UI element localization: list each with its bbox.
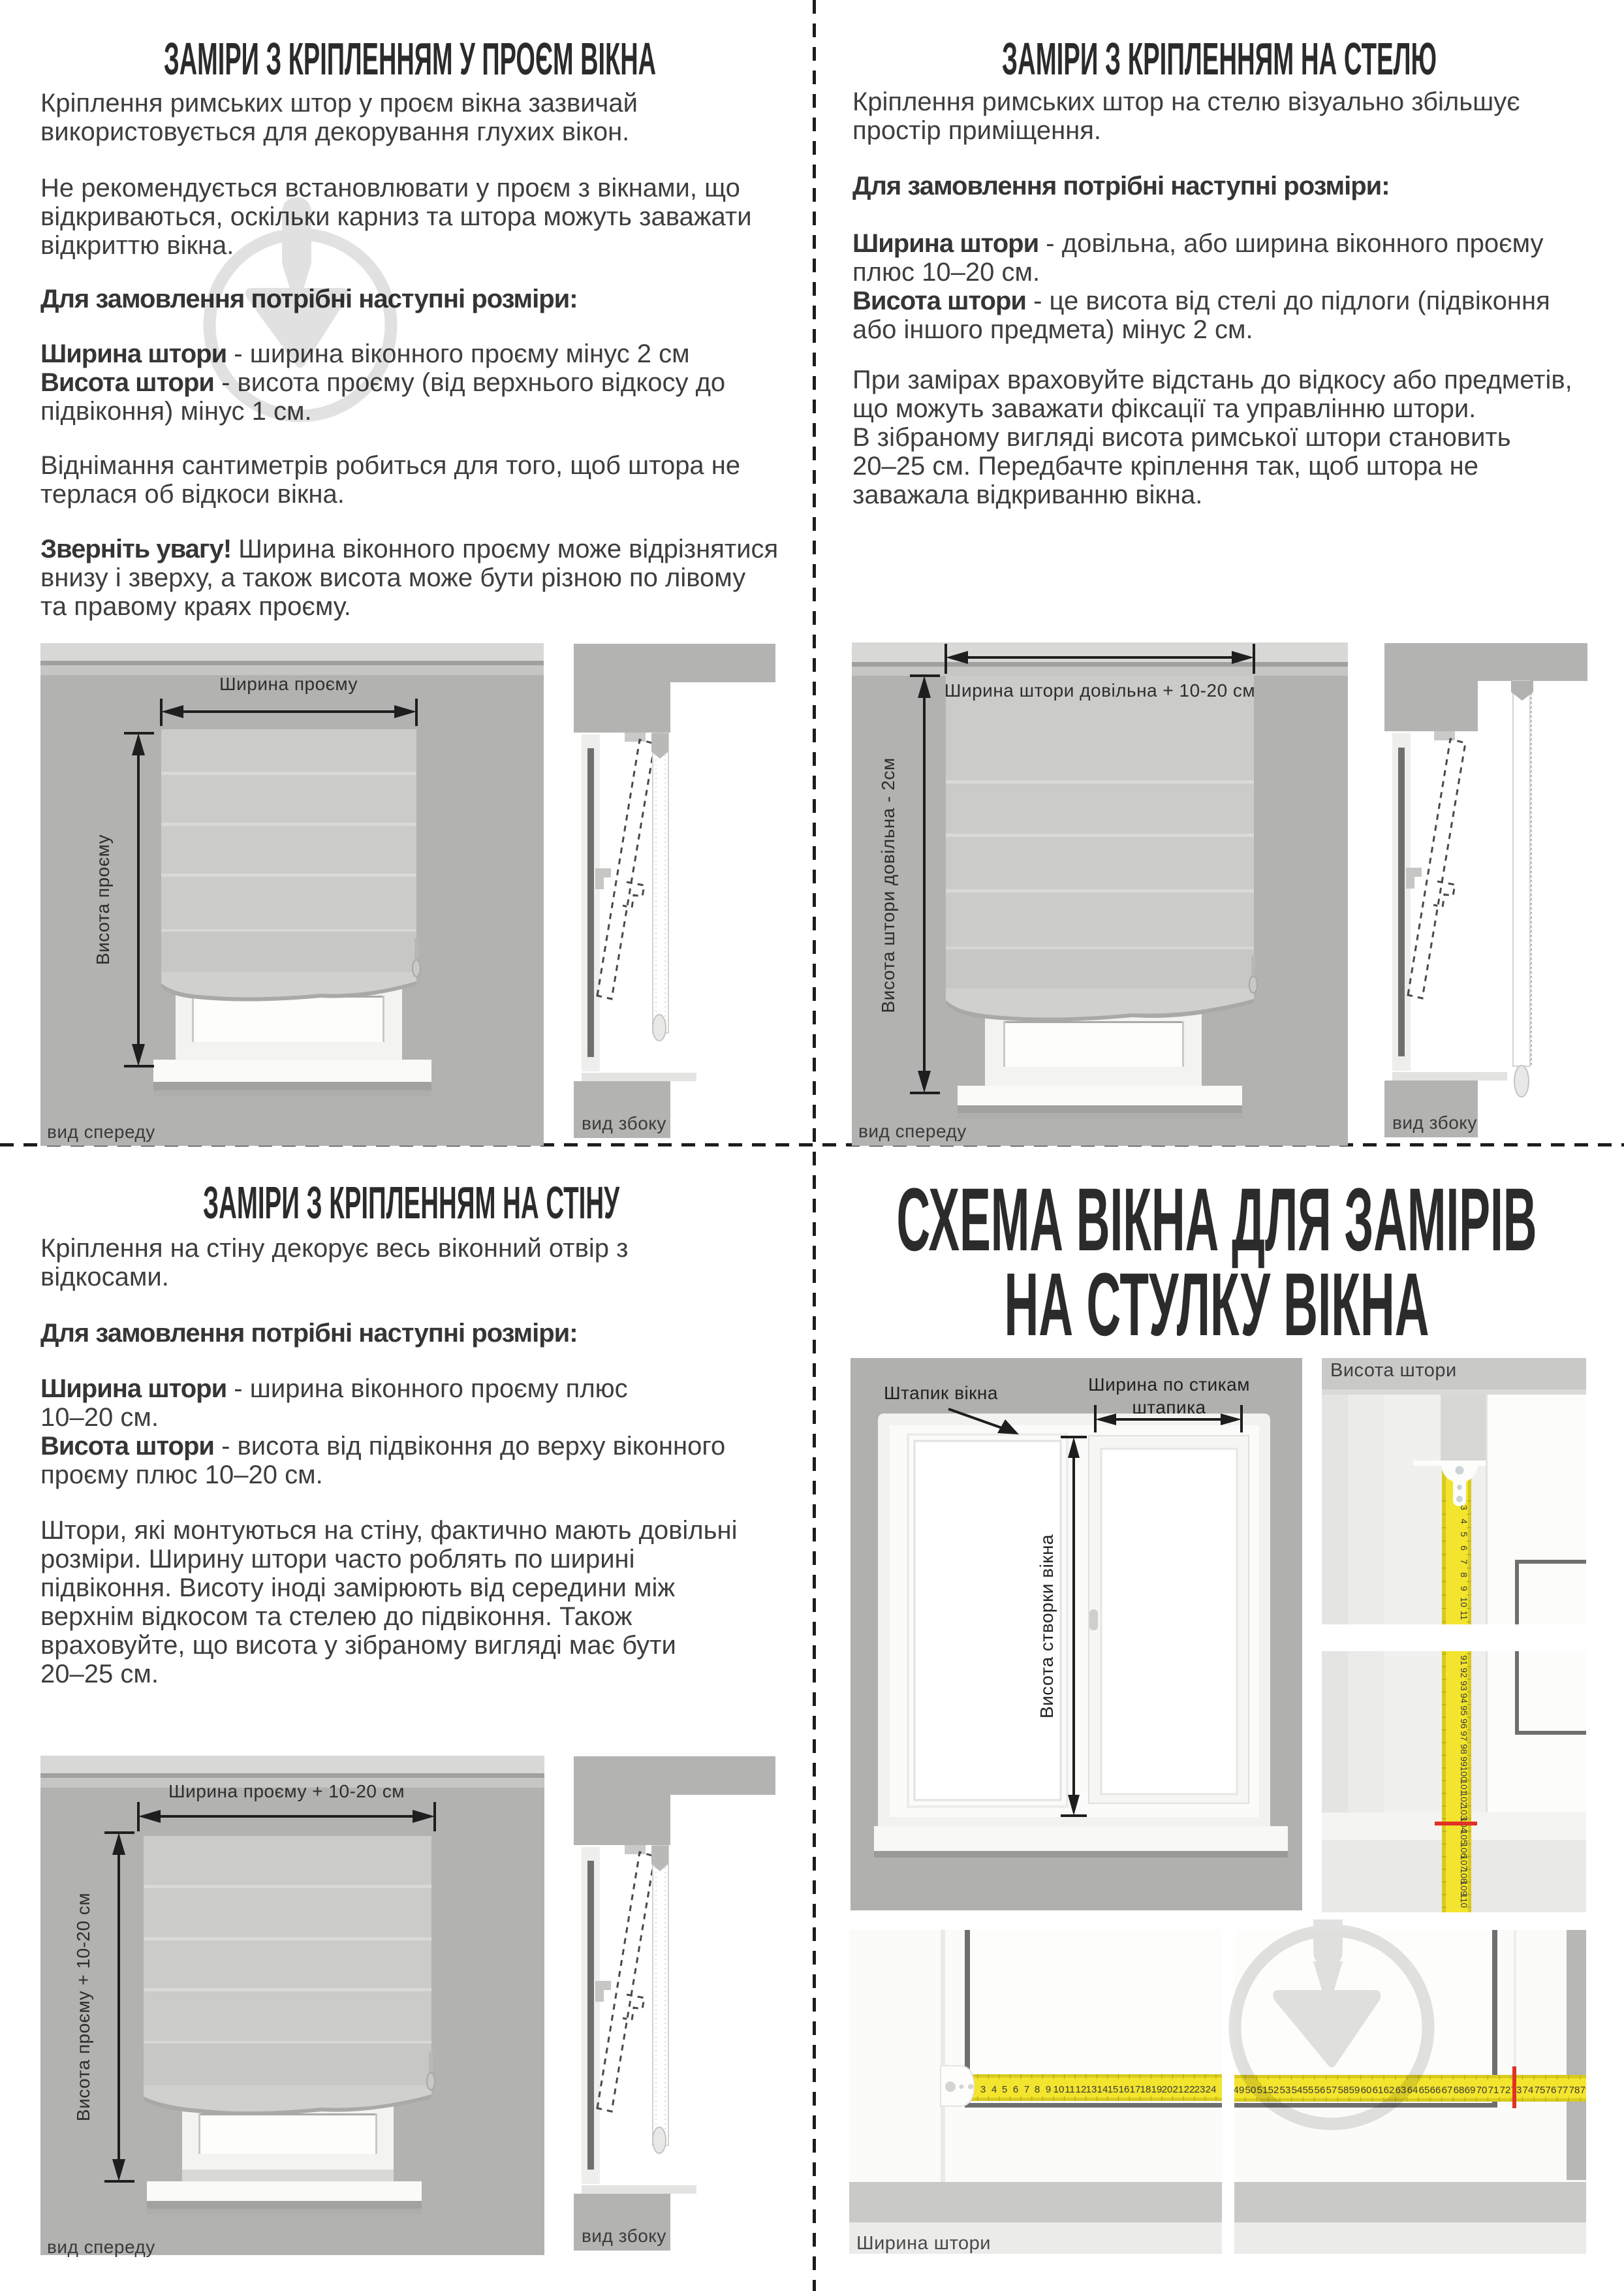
svg-text:9: 9 — [1046, 2084, 1051, 2095]
svg-text:Штапик вікна: Штапик вікна — [884, 1383, 998, 1403]
svg-text:Висота проєму + 10-20 см: Висота проєму + 10-20 см — [73, 1893, 93, 2121]
svg-text:10: 10 — [1054, 2084, 1065, 2095]
svg-text:110: 110 — [1459, 1893, 1469, 1908]
svg-text:Висота штори довільна - 2см: Висота штори довільна - 2см — [878, 757, 898, 1013]
svg-text:ЗАМІРИ З КРІПЛЕННЯМ НА СТЕЛЮ: ЗАМІРИ З КРІПЛЕННЯМ НА СТЕЛЮ — [1002, 33, 1437, 84]
svg-text:69: 69 — [1465, 2085, 1476, 2096]
svg-text:14: 14 — [1097, 2084, 1108, 2095]
svg-text:75: 75 — [1535, 2085, 1546, 2096]
svg-text:вид спереду: вид спереду — [47, 2237, 155, 2257]
svg-text:78: 78 — [1569, 2085, 1580, 2096]
svg-text:16: 16 — [1119, 2084, 1130, 2095]
svg-text:НА СТУЛКУ ВІКНА: НА СТУЛКУ ВІКНА — [1005, 1255, 1429, 1351]
svg-text:8: 8 — [1459, 1572, 1469, 1577]
svg-text:91: 91 — [1459, 1655, 1469, 1666]
svg-text:11: 11 — [1459, 1611, 1469, 1620]
svg-text:вид спереду: вид спереду — [858, 1121, 967, 1141]
svg-text:4: 4 — [992, 2084, 997, 2095]
svg-text:10: 10 — [1459, 1597, 1469, 1607]
svg-text:вид збоку: вид збоку — [582, 2226, 666, 2246]
svg-text:5: 5 — [1002, 2084, 1007, 2095]
svg-text:71: 71 — [1488, 2085, 1499, 2096]
svg-text:74: 74 — [1523, 2085, 1534, 2096]
svg-text:13: 13 — [1086, 2084, 1097, 2095]
svg-text:15: 15 — [1108, 2084, 1119, 2095]
svg-text:72: 72 — [1500, 2085, 1511, 2096]
svg-text:вид спереду: вид спереду — [47, 1122, 155, 1142]
svg-text:79: 79 — [1580, 2085, 1586, 2096]
svg-text:67: 67 — [1442, 2085, 1453, 2096]
svg-text:9: 9 — [1459, 1586, 1469, 1591]
svg-text:18: 18 — [1140, 2084, 1151, 2095]
svg-text:98: 98 — [1459, 1744, 1469, 1754]
svg-text:6: 6 — [1013, 2084, 1018, 2095]
svg-text:8: 8 — [1035, 2084, 1040, 2095]
svg-text:77: 77 — [1557, 2085, 1569, 2096]
svg-text:Висота створки вікна: Висота створки вікна — [1037, 1534, 1057, 1718]
svg-text:11: 11 — [1065, 2084, 1075, 2095]
svg-text:20: 20 — [1162, 2084, 1173, 2095]
svg-text:6: 6 — [1459, 1545, 1469, 1551]
svg-text:94: 94 — [1459, 1693, 1469, 1703]
svg-text:19: 19 — [1151, 2084, 1163, 2095]
svg-text:ЗАМІРИ З КРІПЛЕННЯМ НА СТІНУ: ЗАМІРИ З КРІПЛЕННЯМ НА СТІНУ — [203, 1177, 620, 1228]
svg-text:ЗАМІРИ З КРІПЛЕННЯМ У ПРОЄМ ВІ: ЗАМІРИ З КРІПЛЕННЯМ У ПРОЄМ ВІКНА — [164, 33, 656, 84]
svg-text:Ширина штори: Ширина штори — [856, 2233, 991, 2254]
svg-text:3: 3 — [980, 2084, 986, 2095]
svg-text:92: 92 — [1459, 1667, 1469, 1678]
svg-text:4: 4 — [1459, 1519, 1469, 1524]
svg-text:96: 96 — [1459, 1718, 1469, 1729]
svg-text:3: 3 — [1459, 1505, 1469, 1510]
svg-text:7: 7 — [1459, 1559, 1469, 1564]
svg-text:12: 12 — [1076, 2084, 1087, 2095]
svg-text:76: 76 — [1546, 2085, 1557, 2096]
svg-text:вид збоку: вид збоку — [1392, 1113, 1477, 1133]
svg-text:17: 17 — [1130, 2084, 1141, 2095]
svg-text:95: 95 — [1459, 1705, 1469, 1716]
svg-text:68: 68 — [1454, 2085, 1465, 2096]
svg-text:70: 70 — [1476, 2085, 1488, 2096]
svg-text:93: 93 — [1459, 1681, 1469, 1691]
svg-text:Висота штори: Висота штори — [1330, 1360, 1457, 1381]
svg-text:97: 97 — [1459, 1731, 1469, 1741]
svg-text:23: 23 — [1195, 2084, 1206, 2095]
svg-text:Ширина проєму + 10-20 см: Ширина проєму + 10-20 см — [168, 1781, 405, 1801]
svg-text:Ширина по стикам: Ширина по стикам — [1088, 1374, 1250, 1395]
svg-text:5: 5 — [1459, 1532, 1469, 1537]
svg-text:22: 22 — [1184, 2084, 1195, 2095]
svg-text:Ширина штори довільна + 10-20: Ширина штори довільна + 10-20 см — [945, 680, 1255, 701]
svg-text:штапика: штапика — [1132, 1397, 1206, 1417]
svg-text:24: 24 — [1206, 2084, 1217, 2095]
svg-text:Ширина проєму: Ширина проєму — [219, 674, 358, 694]
svg-text:вид збоку: вид збоку — [582, 1113, 666, 1133]
svg-text:7: 7 — [1024, 2084, 1029, 2095]
svg-text:21: 21 — [1173, 2084, 1184, 2095]
svg-text:99: 99 — [1459, 1756, 1469, 1767]
svg-text:Висота проєму: Висота проєму — [93, 834, 113, 965]
